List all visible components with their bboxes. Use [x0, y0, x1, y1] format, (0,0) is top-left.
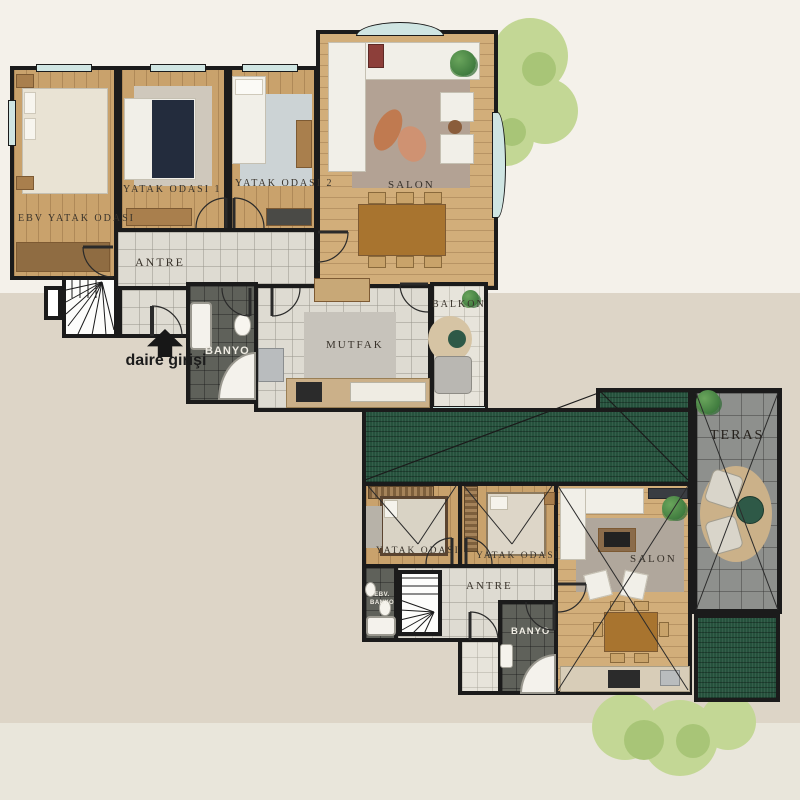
door-arc-bed-right: [466, 538, 492, 564]
door-arcs: [83, 198, 586, 640]
door-arc-mutfak: [272, 288, 300, 316]
door-arc-banyo-upper: [222, 288, 250, 316]
door-arc-entrance: [152, 306, 182, 336]
door-arc-vestibule-lower: [470, 612, 498, 640]
floor-plan-canvas: daire girişi EBV YATAK ODASI YATAK ODASI…: [0, 0, 800, 800]
door-arc-yatak1: [196, 198, 226, 228]
door-arc-bed-left: [426, 538, 452, 564]
plan-linework-overlay: [0, 0, 800, 800]
door-arc-banyo-lower: [526, 602, 554, 630]
stair-treads-upper: [66, 280, 114, 335]
sloped-ceiling-lines: [368, 393, 778, 690]
door-arc-yatak2: [234, 198, 264, 228]
door-arc-balkon: [400, 284, 428, 312]
roof-ridge-lines: [365, 392, 688, 480]
door-arc-ebv: [83, 247, 113, 277]
door-arc-salon-lower: [558, 584, 586, 612]
door-arc-salon-upper: [318, 232, 348, 262]
stair-treads-lower: [400, 578, 440, 634]
